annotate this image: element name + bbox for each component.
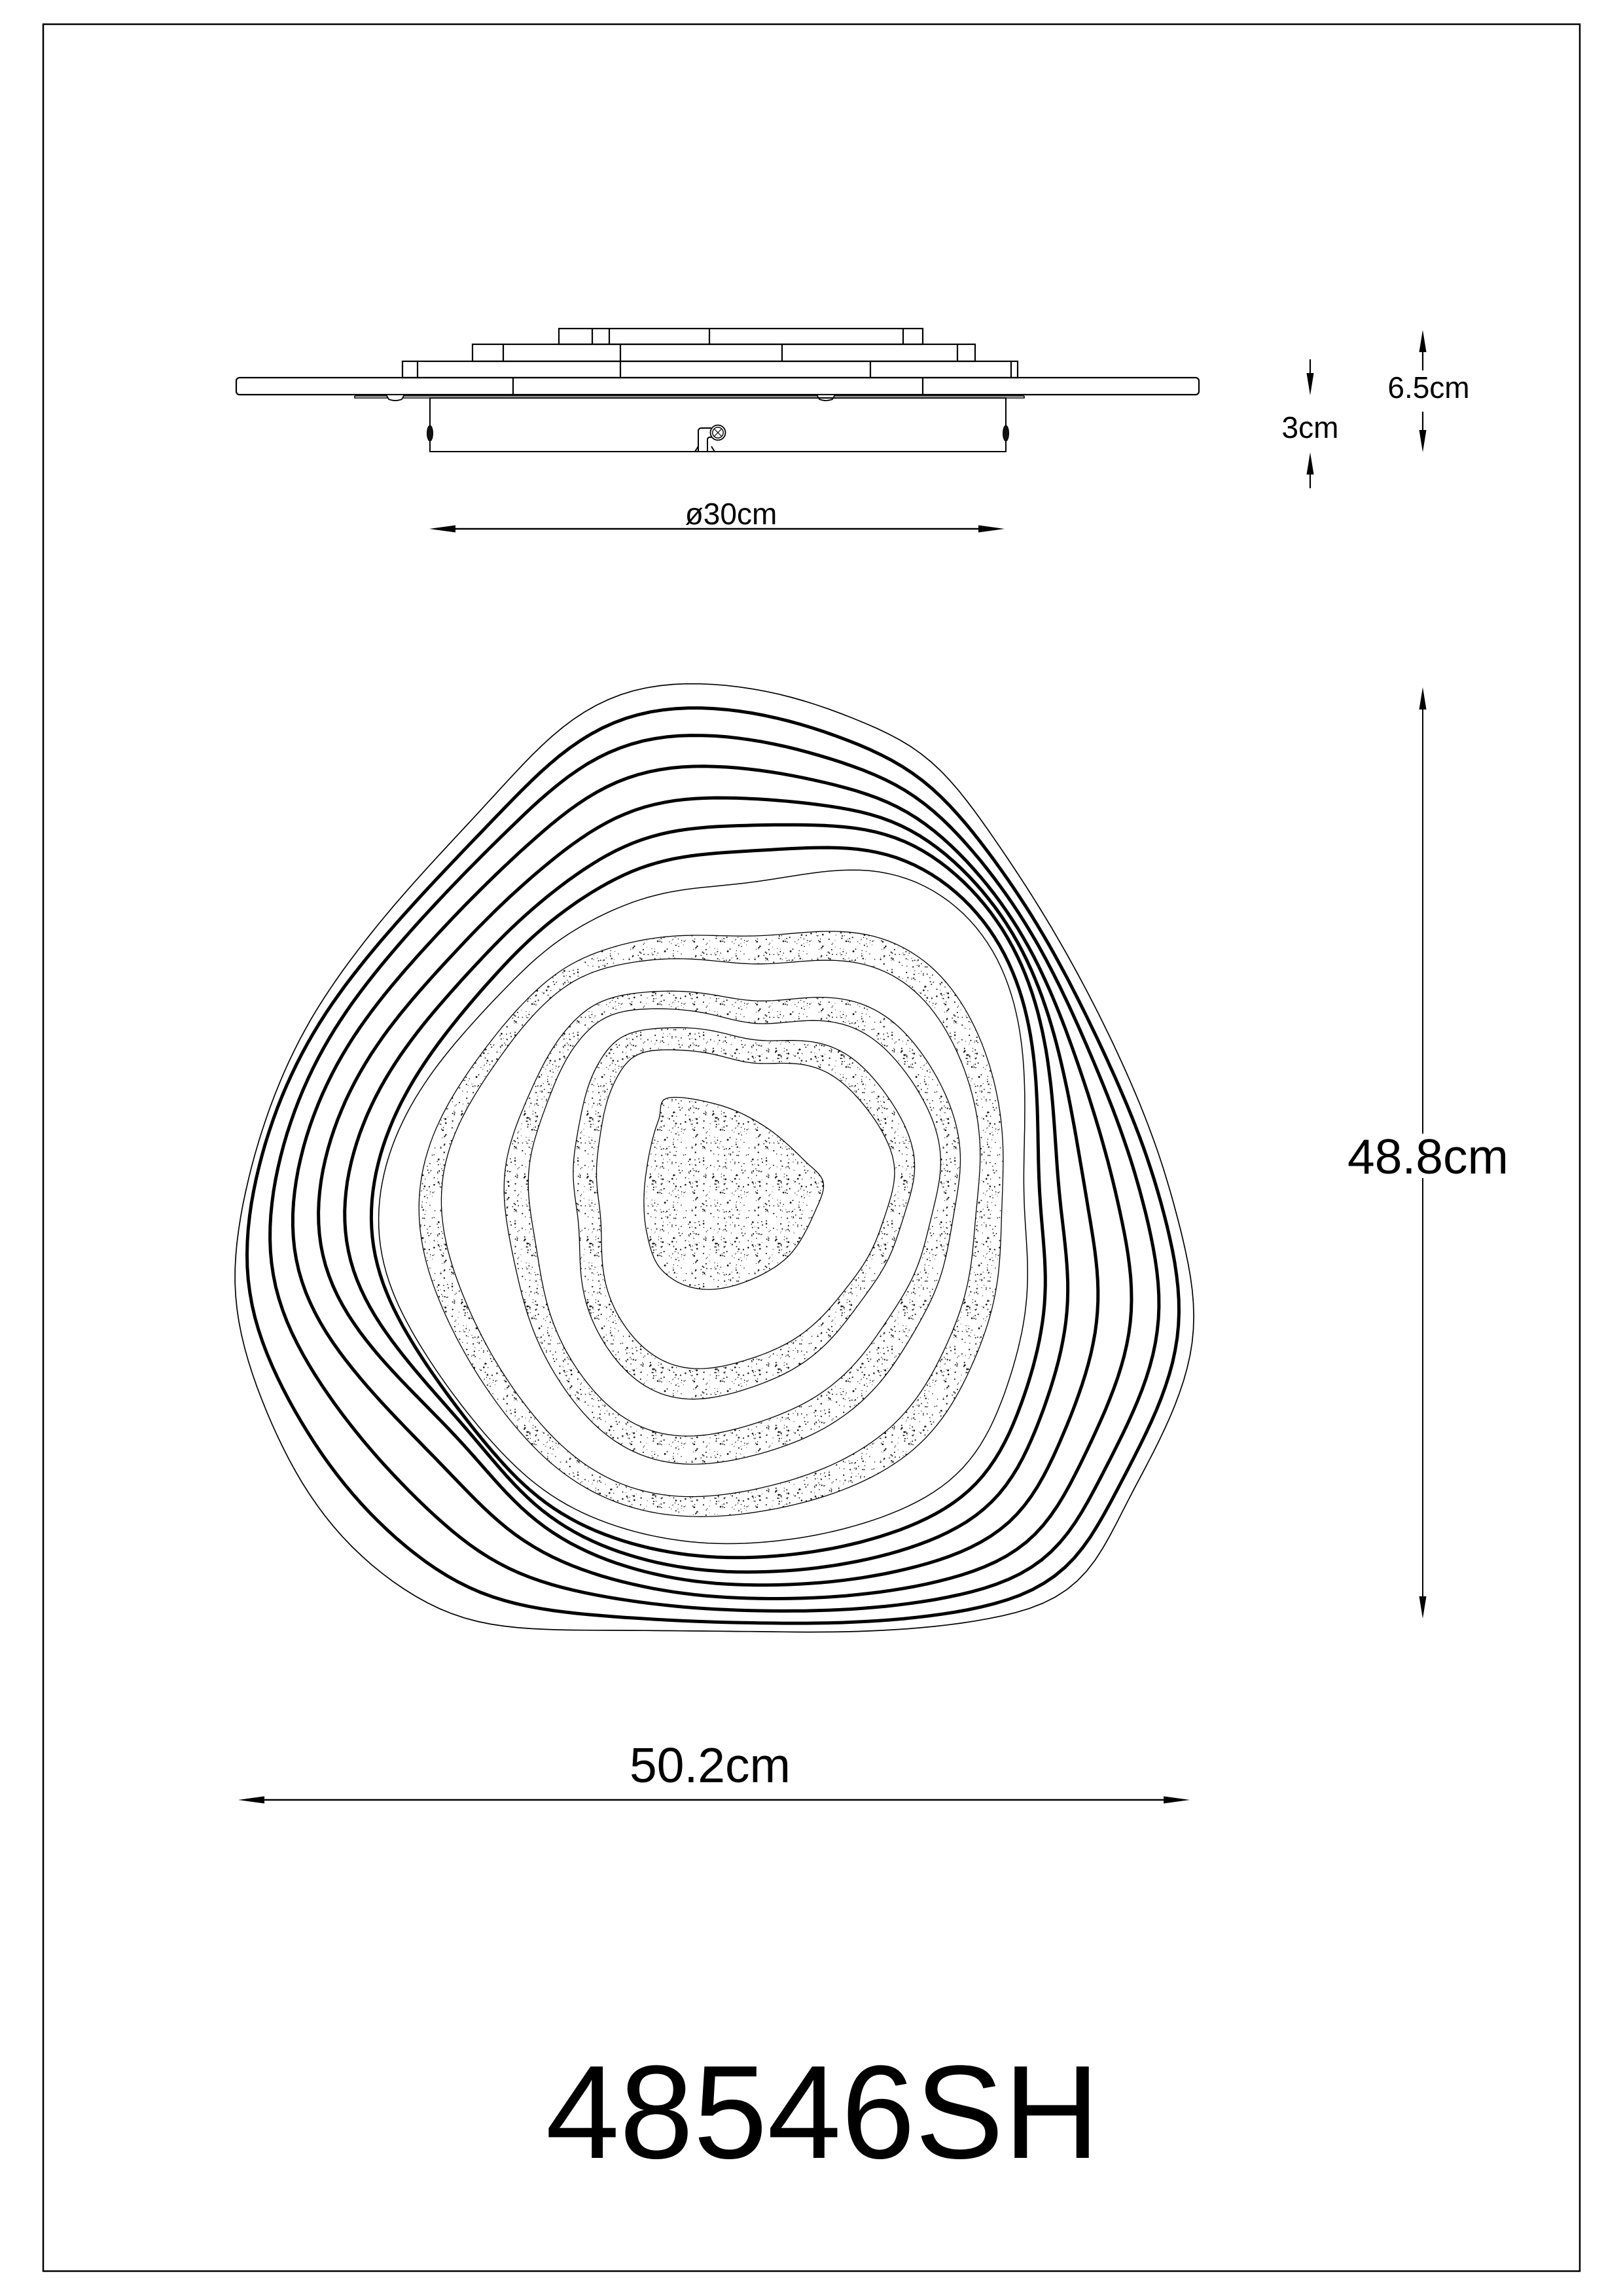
svg-text:50.2cm: 50.2cm [630,1738,791,1793]
svg-text:6.5cm: 6.5cm [1387,370,1469,404]
svg-text:3cm: 3cm [1282,410,1339,444]
svg-text:ø30cm: ø30cm [685,497,777,531]
svg-text:48.8cm: 48.8cm [1347,1129,1508,1184]
svg-text:48546SH: 48546SH [546,2038,1100,2187]
